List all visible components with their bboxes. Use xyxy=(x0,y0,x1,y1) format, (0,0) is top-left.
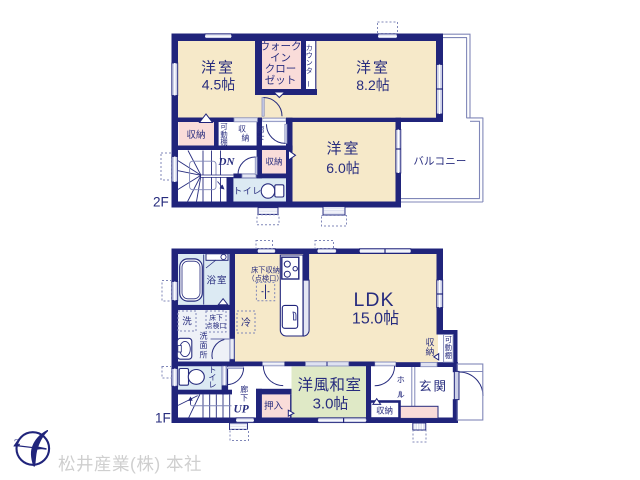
svg-text:点検口: 点検口 xyxy=(206,321,226,330)
svg-text:バルコニー: バルコニー xyxy=(413,156,466,168)
svg-text:DN: DN xyxy=(218,156,236,168)
svg-text:8.2帖: 8.2帖 xyxy=(356,77,389,93)
svg-text:床下: 床下 xyxy=(209,313,223,322)
svg-text:ウォーク: ウォーク xyxy=(260,41,302,53)
svg-text:押入: 押入 xyxy=(264,400,284,412)
svg-text:可動棚: 可動棚 xyxy=(445,335,452,360)
svg-text:洋風和室: 洋風和室 xyxy=(297,376,361,394)
svg-text:洗: 洗 xyxy=(182,316,192,328)
svg-text:洋室: 洋室 xyxy=(201,60,235,77)
svg-text:収納: 収納 xyxy=(186,129,205,141)
svg-text:ホール: ホール xyxy=(395,375,405,399)
svg-text:洋室: 洋室 xyxy=(326,141,360,158)
svg-text:15.0帖: 15.0帖 xyxy=(352,310,399,328)
svg-text:UP: UP xyxy=(234,404,250,416)
svg-text:収納: 収納 xyxy=(425,337,434,358)
svg-text:2F: 2F xyxy=(153,195,169,210)
svg-text:収: 収 xyxy=(238,124,246,134)
svg-text:イン: イン xyxy=(270,52,291,64)
svg-text:松井産業(株) 本社: 松井産業(株) 本社 xyxy=(58,454,202,474)
svg-text:浴室: 浴室 xyxy=(206,275,227,287)
svg-text:廊下: 廊下 xyxy=(257,125,265,144)
svg-text:（点検口）: （点検口） xyxy=(248,274,284,283)
svg-text:廊下: 廊下 xyxy=(240,384,248,403)
svg-text:収納: 収納 xyxy=(265,157,282,167)
svg-text:収納: 収納 xyxy=(376,406,393,416)
svg-text:3.0帖: 3.0帖 xyxy=(313,396,349,413)
svg-text:4.5帖: 4.5帖 xyxy=(202,77,235,93)
svg-text:LDK: LDK xyxy=(354,289,395,311)
svg-text:Z: Z xyxy=(13,439,20,450)
svg-text:ゼット: ゼット xyxy=(265,74,297,86)
svg-text:トイレ: トイレ xyxy=(233,186,262,196)
svg-text:洗面所: 洗面所 xyxy=(200,331,208,360)
svg-text:洋室: 洋室 xyxy=(356,60,390,77)
svg-text:トイレ: トイレ xyxy=(209,366,217,390)
svg-text:1F: 1F xyxy=(155,411,171,426)
svg-text:6.0帖: 6.0帖 xyxy=(326,160,359,176)
svg-text:可動棚: 可動棚 xyxy=(220,122,227,147)
svg-text:クロー: クロー xyxy=(265,63,297,75)
svg-text:納: 納 xyxy=(242,133,250,143)
svg-text:冷: 冷 xyxy=(241,316,251,329)
svg-text:玄関: 玄関 xyxy=(419,379,448,394)
